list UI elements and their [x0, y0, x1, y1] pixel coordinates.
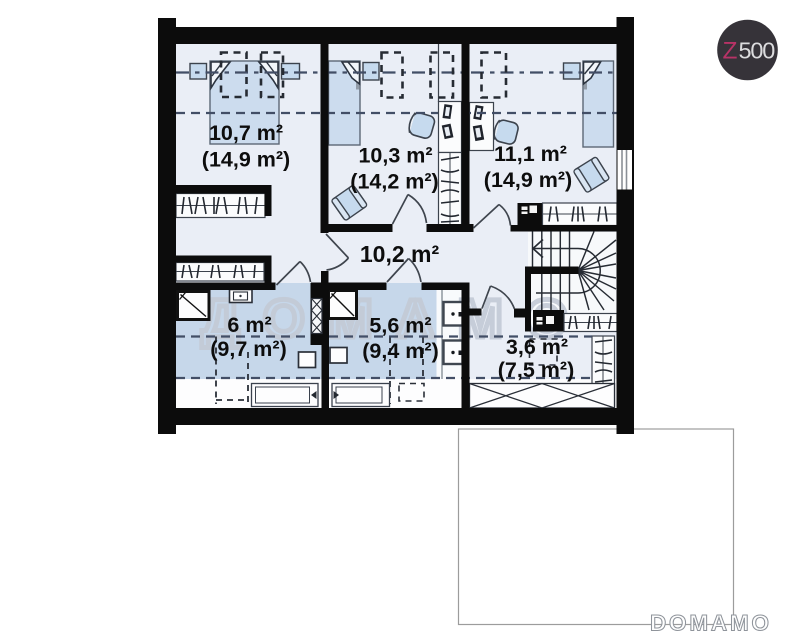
svg-text:(14,9 m²): (14,9 m²)	[484, 168, 572, 192]
svg-text:Z: Z	[723, 38, 738, 65]
svg-text:(9,4 m²): (9,4 m²)	[362, 339, 438, 363]
svg-text:10,3 m²: 10,3 m²	[358, 144, 432, 168]
svg-text:3,6 m²: 3,6 m²	[506, 335, 568, 359]
svg-text:10,7 m²: 10,7 m²	[209, 121, 283, 145]
svg-text:5,6 m²: 5,6 m²	[369, 314, 431, 338]
svg-text:DOMAMO: DOMAMO	[650, 611, 769, 636]
svg-text:(7,5 m²): (7,5 m²)	[498, 358, 574, 382]
svg-text:(14,9 m²): (14,9 m²)	[202, 148, 290, 172]
svg-text:10,2 m²: 10,2 m²	[360, 241, 440, 267]
svg-text:(14,2 m²): (14,2 m²)	[350, 170, 438, 194]
svg-text:11,1 m²: 11,1 m²	[494, 142, 567, 166]
svg-text:500: 500	[739, 38, 776, 64]
svg-text:6 m²: 6 m²	[227, 313, 271, 337]
svg-text:(9,7 m²): (9,7 m²)	[210, 337, 286, 361]
